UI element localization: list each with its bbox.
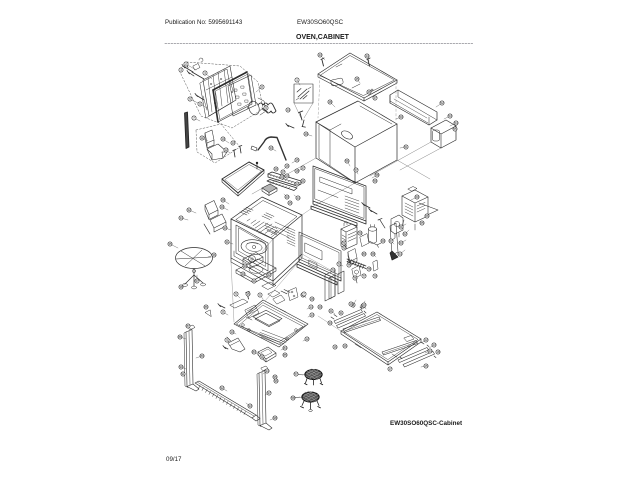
svg-text:78: 78 [367, 267, 371, 271]
svg-text:63: 63 [399, 241, 403, 245]
svg-text:47: 47 [373, 96, 377, 100]
svg-text:58: 58 [291, 396, 295, 400]
svg-text:14: 14 [286, 108, 290, 112]
svg-text:18: 18 [436, 350, 440, 354]
svg-text:22: 22 [424, 338, 428, 342]
svg-text:11: 11 [261, 355, 264, 359]
svg-text:39: 39 [243, 264, 247, 268]
svg-text:94: 94 [265, 369, 269, 373]
svg-text:86: 86 [204, 305, 208, 309]
svg-text:10: 10 [230, 330, 234, 334]
svg-text:90: 90 [179, 365, 183, 369]
svg-text:67: 67 [389, 239, 393, 243]
svg-text:EW30SO60QSC: EW30SO60QSC [297, 19, 344, 26]
svg-text:91: 91 [181, 372, 185, 376]
svg-text:50: 50 [399, 115, 403, 119]
svg-text:OVEN,CABINET: OVEN,CABINET [296, 34, 350, 41]
svg-text:66: 66 [425, 214, 429, 218]
svg-text:31: 31 [339, 311, 343, 315]
svg-text:87: 87 [186, 324, 190, 328]
svg-text:17: 17 [388, 367, 392, 371]
svg-text:69: 69 [381, 239, 385, 243]
svg-text:19: 19 [285, 174, 289, 178]
svg-text:23: 23 [432, 343, 436, 347]
svg-text:43: 43 [318, 53, 322, 57]
svg-text:53: 53 [448, 114, 452, 118]
svg-text:74: 74 [331, 268, 335, 272]
svg-text:12: 12 [305, 337, 309, 341]
svg-text:73: 73 [337, 262, 341, 266]
svg-text:30: 30 [223, 226, 227, 230]
svg-text:22: 22 [295, 182, 299, 186]
svg-text:17: 17 [301, 166, 305, 170]
svg-text:26: 26 [274, 167, 278, 171]
svg-text:61: 61 [399, 225, 403, 229]
svg-text:13: 13 [231, 141, 235, 145]
svg-text:80: 80 [362, 252, 366, 256]
svg-text:64: 64 [398, 252, 402, 256]
svg-text:37: 37 [195, 279, 199, 283]
svg-text:20: 20 [280, 175, 284, 179]
svg-text:55: 55 [453, 127, 457, 131]
svg-text:54: 54 [454, 121, 458, 125]
svg-text:59: 59 [373, 179, 377, 183]
svg-text:52: 52 [440, 101, 444, 105]
svg-text:56: 56 [345, 159, 349, 163]
svg-text:26: 26 [343, 344, 347, 348]
svg-text:98: 98 [273, 416, 277, 420]
svg-text:11: 11 [201, 136, 204, 140]
svg-text:51: 51 [404, 145, 408, 149]
svg-text:15: 15 [246, 292, 250, 296]
svg-text:27: 27 [281, 170, 285, 174]
svg-text:45: 45 [355, 77, 359, 81]
svg-text:28: 28 [221, 198, 225, 202]
svg-text:65: 65 [420, 221, 424, 225]
svg-text:16: 16 [285, 164, 289, 168]
svg-text:13: 13 [310, 313, 314, 317]
svg-text:20: 20 [362, 303, 366, 307]
svg-text:89: 89 [200, 354, 204, 358]
svg-text:71: 71 [342, 241, 346, 245]
svg-text:70: 70 [358, 231, 362, 235]
svg-text:92: 92 [220, 386, 224, 390]
svg-text:24: 24 [296, 196, 300, 200]
svg-text:49: 49 [304, 132, 308, 136]
svg-text:46: 46 [367, 90, 371, 94]
svg-text:10: 10 [221, 137, 225, 141]
svg-text:96: 96 [274, 379, 278, 383]
svg-text:21: 21 [329, 309, 333, 313]
svg-text:25: 25 [288, 201, 292, 205]
svg-text:84: 84 [283, 346, 287, 350]
svg-text:12: 12 [224, 148, 228, 152]
svg-text:25: 25 [424, 364, 428, 368]
svg-text:77: 77 [362, 274, 366, 278]
svg-text:68: 68 [371, 252, 375, 256]
svg-text:29: 29 [220, 205, 224, 209]
svg-text:85: 85 [283, 353, 287, 357]
svg-text:19: 19 [349, 302, 353, 306]
svg-text:72: 72 [342, 246, 346, 250]
svg-text:42: 42 [267, 273, 271, 277]
svg-text:09/17: 09/17 [166, 456, 182, 463]
svg-text:15: 15 [295, 158, 299, 162]
svg-text:75: 75 [347, 263, 351, 267]
svg-text:33: 33 [269, 146, 273, 150]
svg-text:58: 58 [375, 173, 379, 177]
svg-text:40: 40 [241, 272, 245, 276]
svg-text:36: 36 [212, 253, 216, 257]
svg-text:30: 30 [328, 321, 332, 325]
svg-text:31: 31 [225, 240, 229, 244]
svg-text:57: 57 [354, 168, 358, 172]
svg-text:97: 97 [267, 391, 271, 395]
svg-text:18: 18 [295, 169, 299, 173]
svg-text:16: 16 [333, 345, 337, 349]
svg-text:34: 34 [179, 216, 183, 220]
svg-text:35: 35 [168, 242, 172, 246]
svg-text:62: 62 [403, 232, 407, 236]
svg-text:38: 38 [179, 285, 183, 289]
svg-text:83: 83 [252, 350, 256, 354]
svg-text:EW30SO60QSC-Cabinet: EW30SO60QSC-Cabinet [390, 420, 463, 427]
svg-text:23: 23 [285, 195, 289, 199]
svg-text:60: 60 [415, 195, 419, 199]
svg-text:21: 21 [301, 179, 305, 183]
svg-text:44: 44 [365, 54, 369, 58]
svg-text:29: 29 [318, 305, 322, 309]
svg-text:88: 88 [178, 335, 182, 339]
svg-text:28: 28 [310, 297, 314, 301]
svg-text:Publication No: 5995691143: Publication No: 5995691143 [165, 19, 243, 26]
svg-text:24: 24 [428, 349, 432, 353]
svg-text:79: 79 [373, 274, 377, 278]
svg-text:14: 14 [309, 305, 313, 309]
svg-text:41: 41 [252, 279, 256, 283]
svg-text:48: 48 [328, 100, 332, 104]
svg-text:76: 76 [353, 276, 357, 280]
svg-text:93: 93 [248, 404, 252, 408]
svg-text:32: 32 [187, 208, 191, 212]
svg-text:57: 57 [294, 372, 298, 376]
